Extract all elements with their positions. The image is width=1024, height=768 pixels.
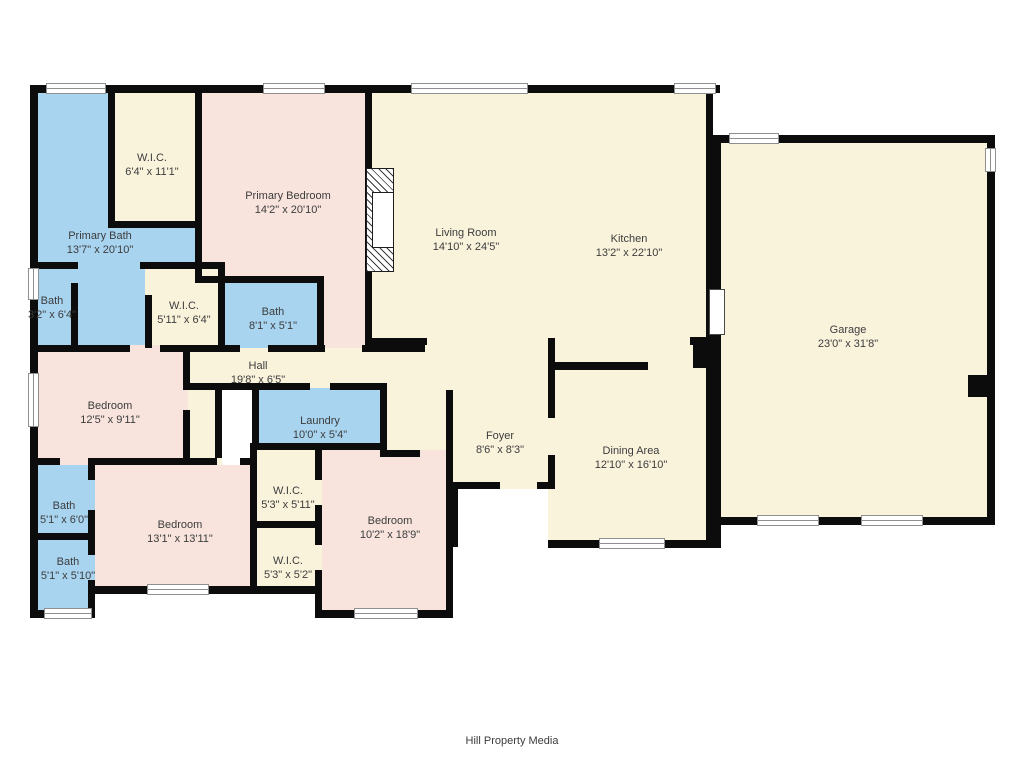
room-name: Bath — [41, 555, 95, 569]
wall — [30, 85, 38, 618]
wall — [548, 455, 555, 489]
wall — [548, 362, 648, 370]
room-name: Bedroom — [360, 514, 420, 528]
room-name: Kitchen — [596, 232, 662, 246]
room-label-bedroom-12-5: Bedroom12'5" x 9'11" — [80, 399, 140, 427]
room-dimensions: 5'1" x 5'10" — [41, 569, 95, 583]
wall — [713, 135, 721, 292]
wall — [183, 345, 190, 385]
wall — [183, 410, 190, 465]
garage-door-leaf — [709, 289, 725, 335]
room-label-primary-bedroom: Primary Bedroom14'2" x 20'10" — [245, 189, 331, 217]
room-dimensions: 14'10" x 24'5" — [433, 240, 499, 254]
room-name: W.I.C. — [261, 484, 314, 498]
window — [263, 83, 325, 94]
room-dimensions: 14'2" x 20'10" — [245, 203, 331, 217]
wall — [713, 335, 721, 548]
room-dimensions: 3'2" x 6'4" — [28, 308, 76, 322]
window — [985, 148, 996, 172]
wall — [218, 262, 225, 348]
room-label-bath-8-1: Bath8'1" x 5'1" — [249, 305, 297, 333]
window — [46, 83, 106, 94]
window — [28, 373, 39, 427]
wall — [108, 221, 200, 228]
room-region-living-kitchen — [365, 85, 713, 345]
room-dimensions: 10'2" x 18'9" — [360, 528, 420, 542]
room-dimensions: 6'4" x 11'1" — [125, 165, 178, 179]
room-label-hall: Hall19'8" x 6'5" — [231, 359, 285, 387]
room-label-bedroom-13-1: Bedroom13'1" x 13'11" — [147, 518, 213, 546]
wall — [140, 262, 225, 269]
wall — [88, 458, 217, 465]
room-dimensions: 8'6" x 8'3" — [476, 443, 524, 457]
room-name: Living Room — [433, 226, 499, 240]
room-dimensions: 12'5" x 9'11" — [80, 413, 140, 427]
room-dimensions: 12'10" x 16'10" — [595, 458, 668, 472]
wall — [250, 521, 322, 528]
room-dimensions: 5'11" x 6'4" — [157, 313, 210, 327]
room-name: Bath — [249, 305, 297, 319]
room-dimensions: 19'8" x 6'5" — [231, 373, 285, 387]
wall — [315, 450, 322, 480]
window — [44, 608, 92, 619]
room-label-bath-3-2: Bath3'2" x 6'4" — [28, 294, 76, 322]
room-name: Garage — [818, 323, 878, 337]
room-name: Dining Area — [595, 444, 668, 458]
watermark-text: Hill Property Media — [466, 735, 559, 747]
wall — [365, 338, 427, 345]
room-label-living-room: Living Room14'10" x 24'5" — [433, 226, 499, 254]
wall — [362, 345, 425, 352]
room-label-bath-5-1-5-10: Bath5'1" x 5'10" — [41, 555, 95, 583]
room-label-wic-primary: W.I.C.6'4" x 11'1" — [125, 151, 178, 179]
room-label-wic-5-11: W.I.C.5'11" x 6'4" — [157, 299, 210, 327]
room-dimensions: 13'2" x 22'10" — [596, 246, 662, 260]
room-label-garage: Garage23'0" x 31'8" — [818, 323, 878, 351]
wall — [195, 85, 202, 283]
wall — [315, 505, 322, 545]
floor-plan: Hill Property Media W.I.C.6'4" x 11'1"Pr… — [0, 0, 1024, 768]
window — [729, 133, 779, 144]
wall — [315, 586, 322, 618]
wall — [380, 450, 420, 457]
wall — [252, 390, 259, 450]
room-label-bedroom-10-2: Bedroom10'2" x 18'9" — [360, 514, 420, 542]
wall — [250, 443, 387, 450]
room-dimensions: 5'3" x 5'11" — [261, 498, 314, 512]
wall — [713, 517, 995, 525]
wall — [88, 465, 95, 480]
room-dimensions: 13'7" x 20'10" — [67, 243, 133, 257]
room-name: Foyer — [476, 429, 524, 443]
window — [147, 584, 209, 595]
wall — [108, 85, 115, 228]
wall — [548, 338, 555, 418]
room-name: W.I.C. — [157, 299, 210, 313]
room-name: Bedroom — [80, 399, 140, 413]
room-dimensions: 5'1" x 6'0" — [40, 513, 88, 527]
room-label-wic-5-3-5-2: W.I.C.5'3" x 5'2" — [264, 554, 312, 582]
room-name: W.I.C. — [264, 554, 312, 568]
room-label-dining-area: Dining Area12'10" x 16'10" — [595, 444, 668, 472]
room-label-wic-5-3-5-11: W.I.C.5'3" x 5'11" — [261, 484, 314, 512]
room-name: Bath — [40, 499, 88, 513]
window — [674, 83, 716, 94]
wall — [30, 85, 720, 93]
room-region-primary-bedroom — [195, 85, 372, 283]
wall — [317, 276, 324, 352]
window — [599, 538, 665, 549]
room-label-primary-bath: Primary Bath13'7" x 20'10" — [67, 229, 133, 257]
room-label-foyer: Foyer8'6" x 8'3" — [476, 429, 524, 457]
room-name: Bedroom — [147, 518, 213, 532]
room-dimensions: 10'0" x 5'4" — [293, 428, 347, 442]
fireplace-firebox — [372, 192, 394, 248]
wall — [195, 276, 324, 283]
room-region-primary-bedroom-ext — [318, 276, 372, 348]
room-region-hall-nook — [380, 388, 450, 450]
room-dimensions: 8'1" x 5'1" — [249, 319, 297, 333]
wall — [160, 345, 240, 352]
wall — [30, 345, 130, 352]
wall — [987, 135, 995, 525]
room-dimensions: 5'3" x 5'2" — [264, 568, 312, 582]
window — [861, 515, 923, 526]
wall — [88, 540, 95, 555]
wall — [215, 390, 222, 458]
room-name: Bath — [28, 294, 76, 308]
room-label-kitchen: Kitchen13'2" x 22'10" — [596, 232, 662, 260]
room-label-bath-5-1-6-0: Bath5'1" x 6'0" — [40, 499, 88, 527]
window — [757, 515, 819, 526]
room-dimensions: 23'0" x 31'8" — [818, 337, 878, 351]
room-dimensions: 13'1" x 13'11" — [147, 532, 213, 546]
room-name: Hall — [231, 359, 285, 373]
wall — [330, 383, 387, 390]
room-name: Laundry — [293, 414, 347, 428]
wall — [30, 533, 95, 540]
wall — [450, 482, 458, 547]
room-name: Primary Bedroom — [245, 189, 331, 203]
wall — [250, 450, 257, 593]
wall — [88, 510, 95, 540]
room-name: Primary Bath — [67, 229, 133, 243]
room-name: W.I.C. — [125, 151, 178, 165]
wall — [706, 368, 713, 548]
wall — [145, 295, 152, 348]
window — [354, 608, 418, 619]
window — [411, 83, 528, 94]
wall — [380, 388, 387, 450]
room-label-laundry: Laundry10'0" x 5'4" — [293, 414, 347, 442]
